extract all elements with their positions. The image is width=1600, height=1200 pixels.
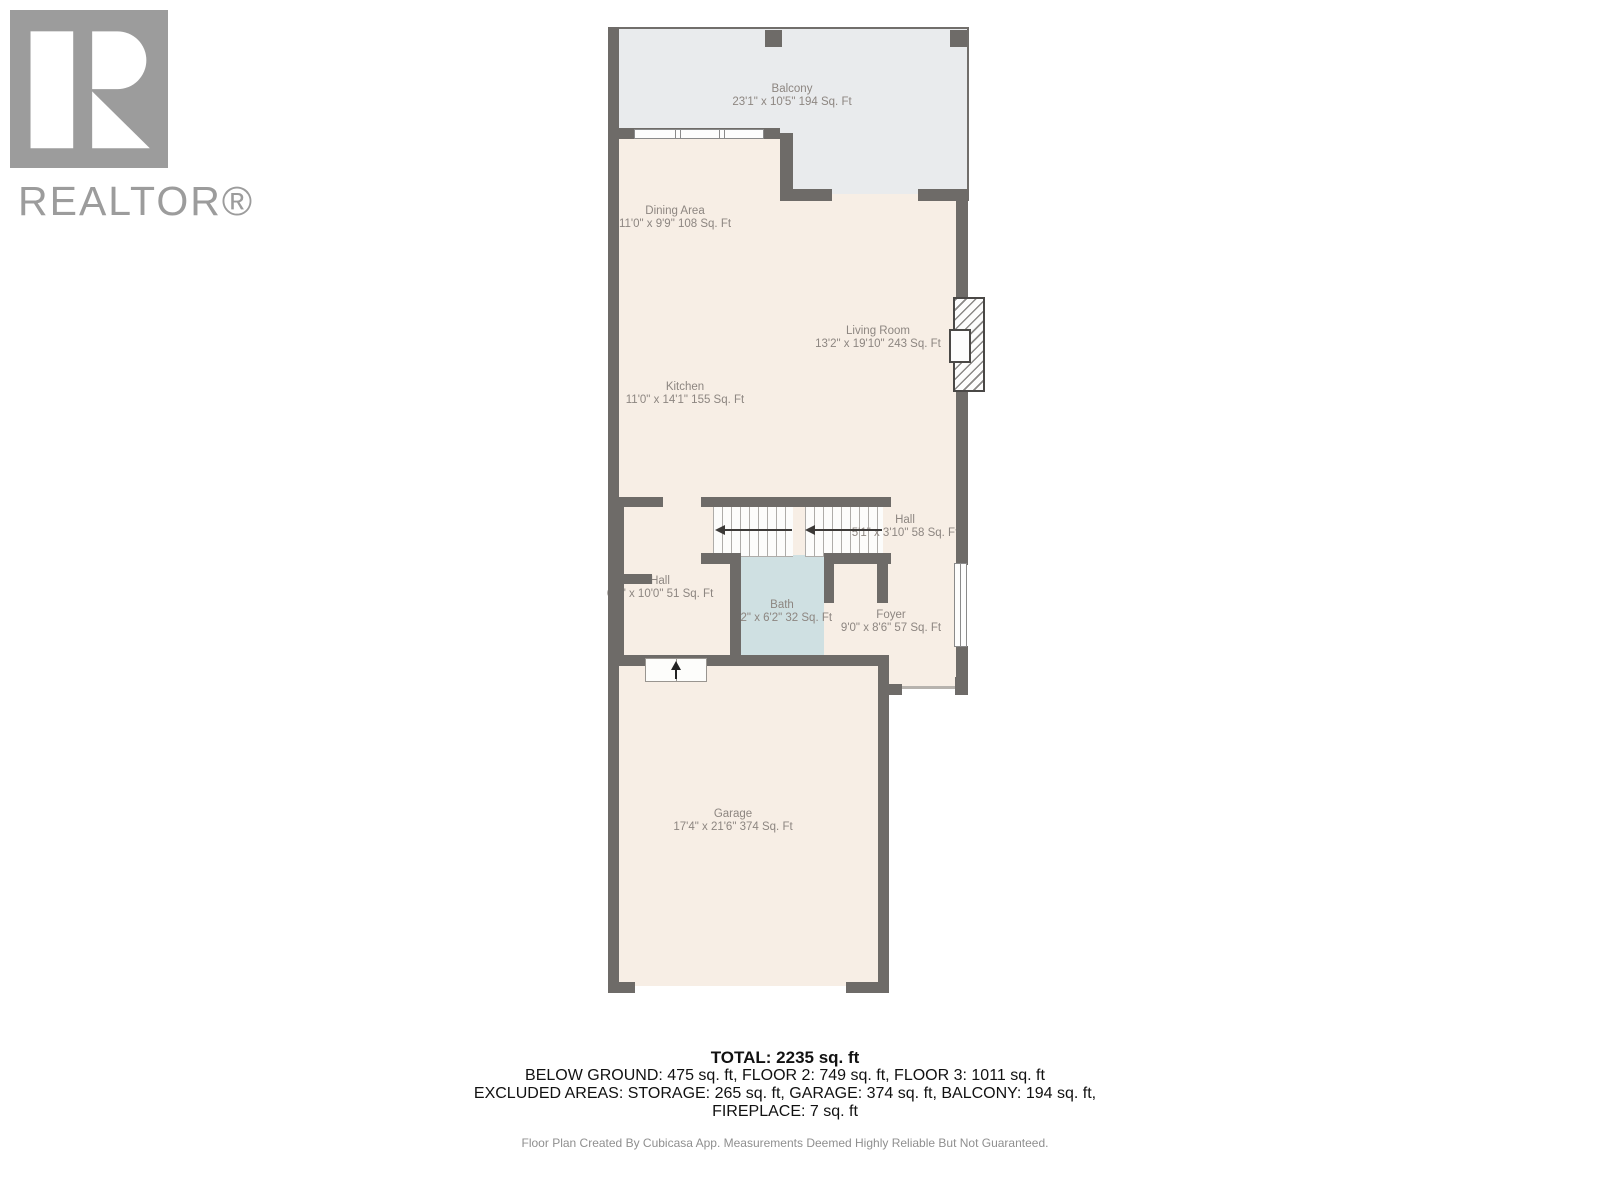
wall-dining-right	[780, 133, 793, 195]
summary-total: TOTAL: 2235 sq. ft	[0, 1049, 1570, 1067]
room-name: Living Room	[815, 326, 941, 338]
wall-bath-right	[824, 553, 834, 603]
wall-stairs-top	[701, 497, 891, 507]
stairs-run-upper	[713, 506, 793, 557]
room-label-bath: Bath 5'2" x 6'2" 32 Sq. Ft	[732, 600, 832, 624]
summary-excluded: EXCLUDED AREAS: STORAGE: 265 sq. ft, GAR…	[0, 1085, 1570, 1103]
realtor-logo-icon	[10, 10, 168, 168]
balcony-edge-right	[967, 27, 969, 200]
room-dims: 11'0" x 14'1" 155 Sq. Ft	[626, 395, 744, 407]
realtor-logo-text: REALTOR®	[18, 178, 254, 225]
balcony-post	[765, 30, 782, 47]
room-name: Foyer	[841, 610, 941, 622]
room-name: Hall	[852, 515, 959, 527]
room-dims: 9'0" x 8'6" 57 Sq. Ft	[841, 623, 941, 635]
foyer-entry-threshold	[902, 686, 955, 689]
room-label-living-room: Living Room 13'2" x 19'10" 243 Sq. Ft	[815, 326, 941, 350]
stairs-direction-arrow-icon	[805, 525, 815, 535]
stairs-direction-line	[724, 529, 792, 531]
wall-foyer-stub	[877, 553, 888, 603]
room-label-dining-area: Dining Area 11'0" x 9'9" 108 Sq. Ft	[619, 206, 731, 230]
wall-foyer-bottom-stub-right	[955, 677, 968, 695]
wall-bath-left	[730, 553, 741, 663]
room-label-garage: Garage 17'4" x 21'6" 374 Sq. Ft	[673, 809, 792, 833]
room-name: Dining Area	[619, 206, 731, 218]
room-label-foyer: Foyer 9'0" x 8'6" 57 Sq. Ft	[841, 610, 941, 634]
room-name: Garage	[673, 809, 792, 821]
balcony-edge-top	[608, 27, 969, 29]
summary-floors: BELOW GROUND: 475 sq. ft, FLOOR 2: 749 s…	[0, 1067, 1570, 1085]
up-arrow-icon	[671, 661, 681, 670]
room-label-kitchen: Kitchen 11'0" x 14'1" 155 Sq. Ft	[626, 382, 744, 406]
realtor-logo: REALTOR®	[10, 10, 168, 173]
room-name: Kitchen	[626, 382, 744, 394]
wall-garage-bottom-left	[608, 982, 635, 993]
fireplace-firebox	[949, 329, 971, 363]
window-mullion	[719, 130, 725, 138]
stairs-direction-arrow-icon	[715, 525, 725, 535]
room-dims: 17'4" x 21'6" 374 Sq. Ft	[673, 822, 792, 834]
room-label-balcony: Balcony 23'1" x 10'5" 194 Sq. Ft	[732, 84, 851, 108]
wall-balcony-step-left	[780, 189, 832, 201]
room-dims: 5'2" x 6'2" 32 Sq. Ft	[732, 613, 832, 625]
window-mullion	[960, 564, 961, 646]
balcony-post	[950, 30, 967, 47]
room-dims: 23'1" x 10'5" 194 Sq. Ft	[732, 97, 851, 109]
disclaimer-text: Floor Plan Created By Cubicasa App. Meas…	[0, 1136, 1570, 1150]
wall-hall-stub	[608, 574, 652, 584]
stairs-direction-line	[814, 529, 882, 531]
room-dims: 11'0" x 9'9" 108 Sq. Ft	[619, 219, 731, 231]
room-dims: 13'2" x 19'10" 243 Sq. Ft	[815, 339, 941, 351]
summary-fireplace: FIREPLACE: 7 sq. ft	[0, 1103, 1570, 1121]
room-name: Bath	[732, 600, 832, 612]
area-summary: TOTAL: 2235 sq. ft BELOW GROUND: 475 sq.…	[0, 1049, 1570, 1121]
window-mullion	[675, 130, 681, 138]
dining-window	[634, 129, 764, 139]
room-label-hall-upper: Hall 5'1" x 3'10" 58 Sq. Ft	[852, 515, 959, 539]
wall-garage-bottom-right	[846, 982, 889, 993]
foyer-window	[954, 563, 967, 647]
room-name: Balcony	[732, 84, 851, 96]
wall-foyer-bottom-stub-left	[889, 684, 902, 695]
realtor-wordmark: REALTOR®	[18, 178, 254, 224]
wall-garage-right	[878, 655, 889, 993]
floor-plan-page: { "branding": { "name": "REALTOR®", "log…	[0, 0, 1600, 1200]
entry-steps	[645, 658, 707, 682]
entry-arrow-stem	[675, 669, 677, 679]
